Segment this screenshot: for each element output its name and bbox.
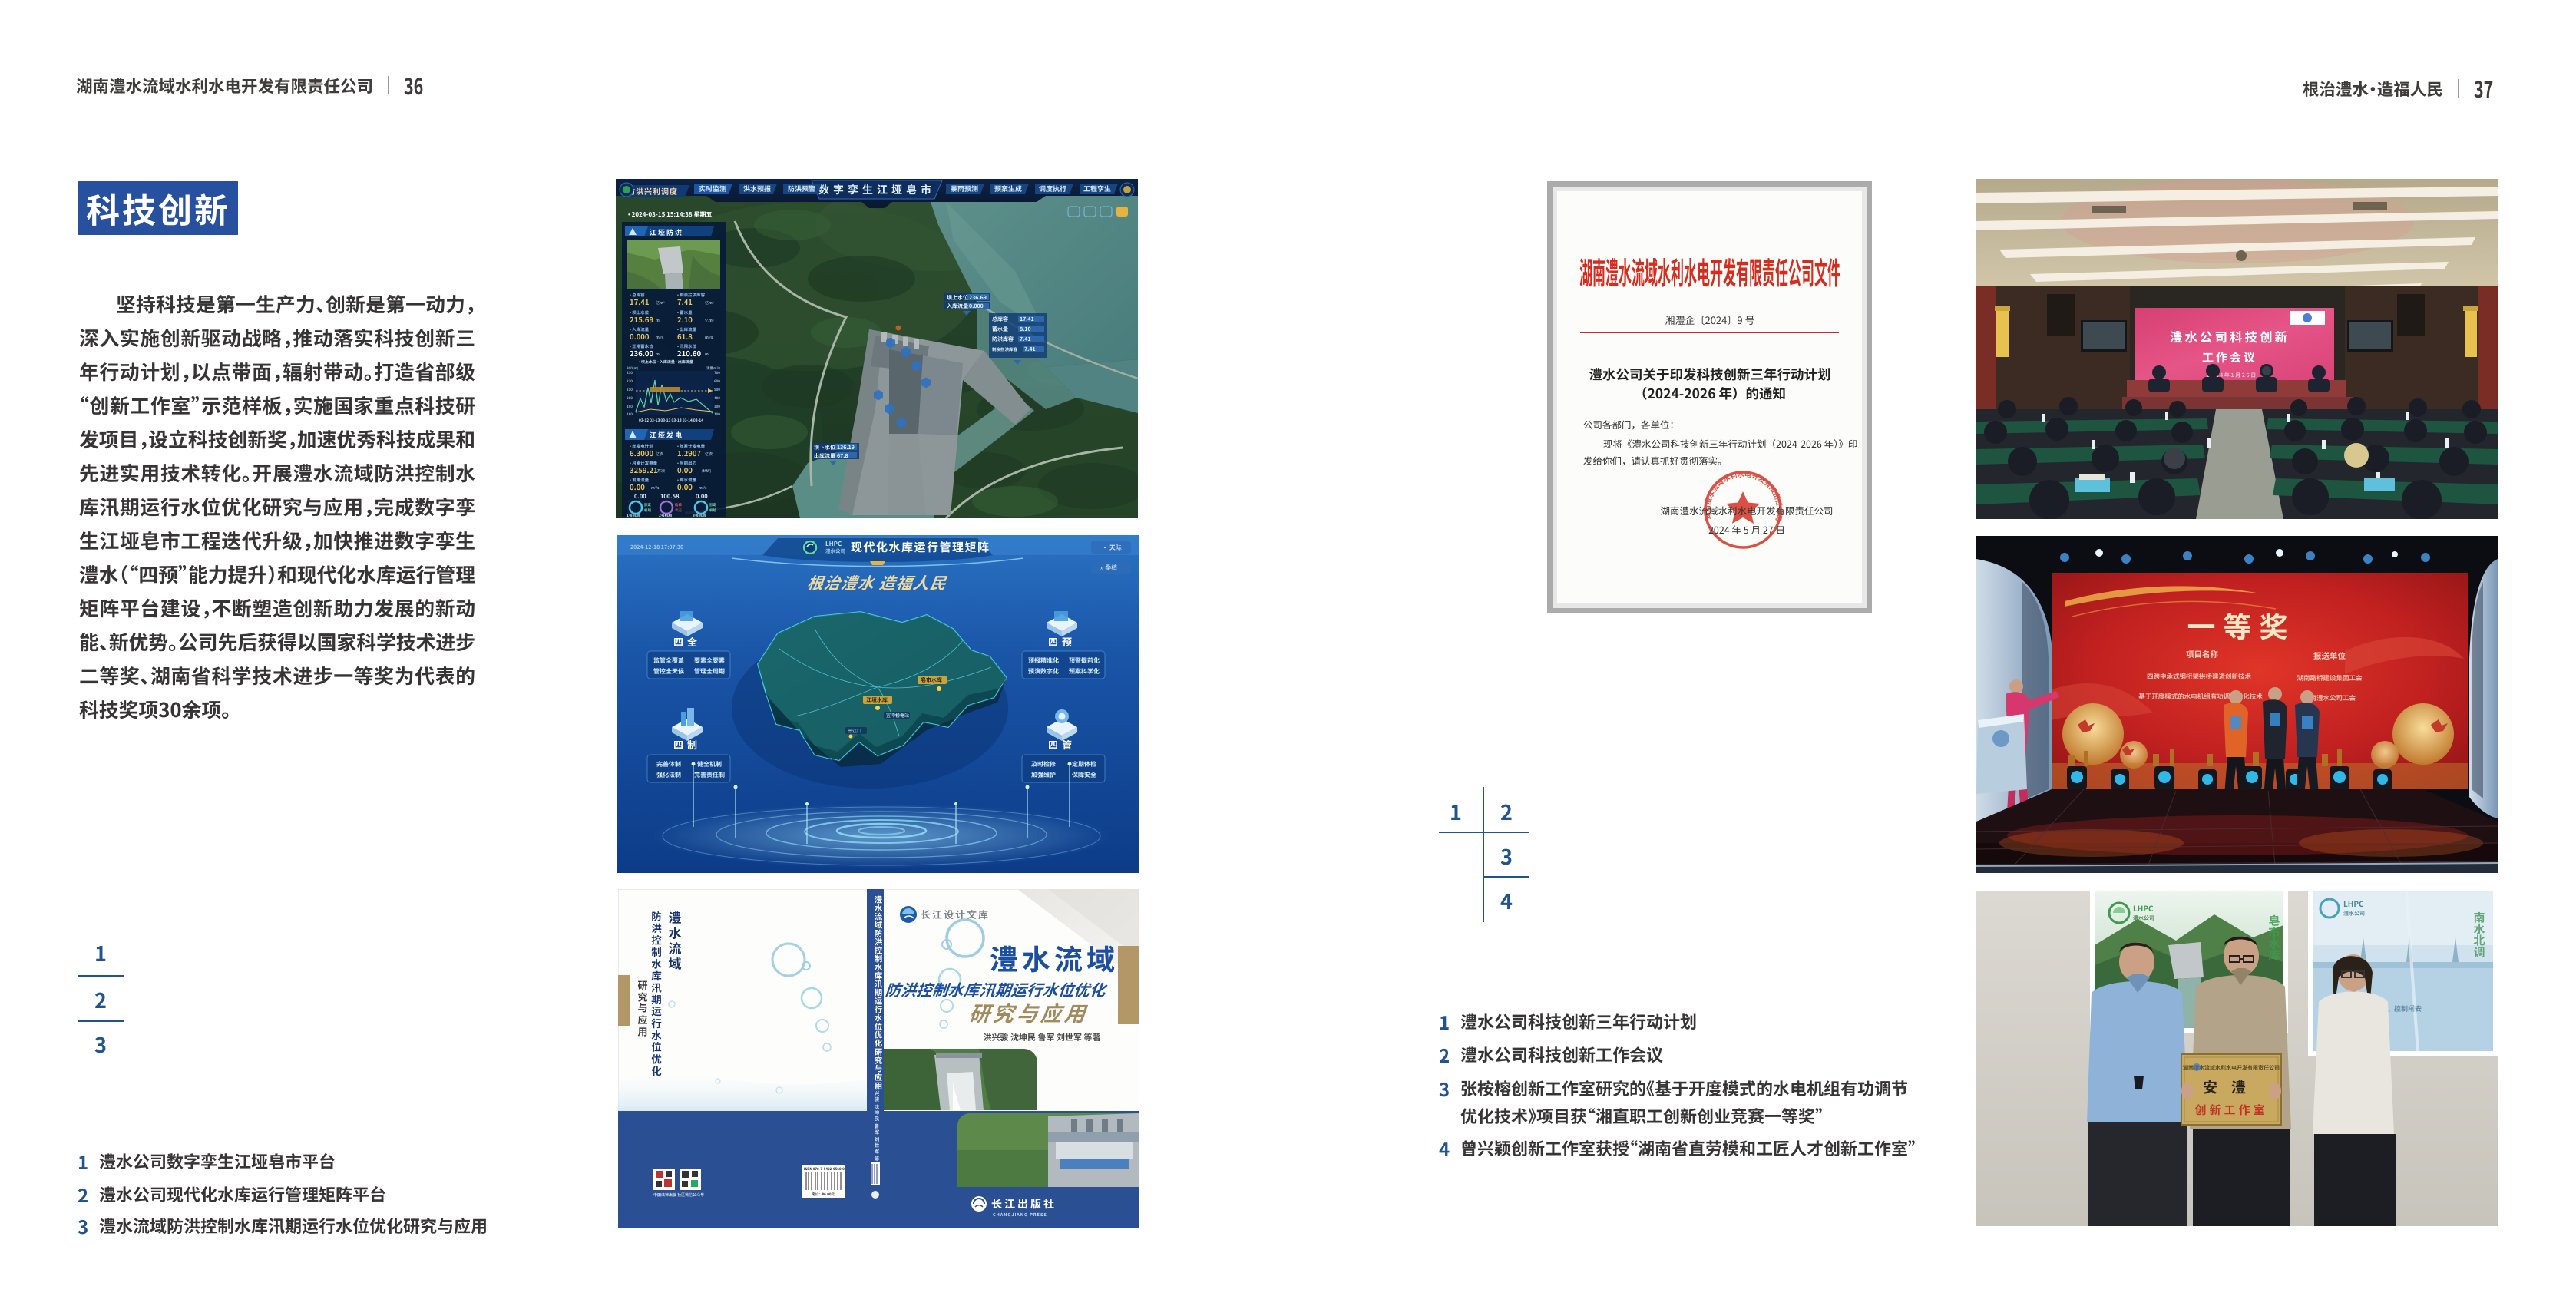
- svg-text:公司各部门，各单位：: 公司各部门，各单位：: [1583, 417, 1679, 431]
- svg-text:完善责任制: 完善责任制: [694, 771, 725, 779]
- svg-text:预报精准化: 预报精准化: [1028, 656, 1059, 665]
- svg-text:» 桑植: » 桑植: [1100, 564, 1117, 572]
- svg-text:根治澧水 造福人民: 根治澧水 造福人民: [805, 571, 949, 594]
- svg-text:预演数字化: 预演数字化: [1028, 667, 1059, 676]
- svg-text:澧水公司科技创新: 澧水公司科技创新: [2170, 327, 2290, 346]
- svg-text:m: m: [705, 352, 709, 357]
- svg-text:亿m³: 亿m³: [705, 318, 714, 323]
- svg-text:机组: 机组: [644, 508, 651, 513]
- svg-text:预警提前化: 预警提前化: [1069, 656, 1100, 665]
- svg-text:要素全要素: 要素全要素: [694, 656, 725, 665]
- svg-text:7.41: 7.41: [677, 296, 693, 307]
- svg-text:180: 180: [627, 412, 633, 417]
- svg-text:检修: 检修: [675, 503, 682, 508]
- svg-text:防洪控制水库汛期运行水位优化: 防洪控制水库汛期运行水位优化: [649, 911, 664, 1077]
- svg-text:0.00: 0.00: [677, 481, 693, 492]
- svg-text:(MW): (MW): [702, 468, 712, 474]
- svg-text:江垭防洪: 江垭防洪: [650, 227, 683, 237]
- svg-text:现将《澧水公司科技创新三年行动计划（2024-2026 年）: 现将《澧水公司科技创新三年行动计划（2024-2026 年）》印: [1603, 436, 1857, 451]
- svg-text:状态: 状态: [675, 508, 682, 513]
- svg-text:m³/s: m³/s: [656, 335, 664, 340]
- svg-text:澧水流域防洪控制水库汛期运行水位优化研究与应用: 澧水流域防洪控制水库汛期运行水位优化研究与应用: [873, 895, 885, 1089]
- svg-text:湖南澧水流域水利水电开发有限责任公司文件: 湖南澧水流域水利水电开发有限责任公司文件: [1579, 249, 1840, 293]
- svg-text:湘澧企〔2024〕9 号: 湘澧企〔2024〕9 号: [1665, 312, 1755, 327]
- svg-text:2.10: 2.10: [677, 314, 693, 325]
- svg-text:1号机组: 1号机组: [627, 513, 640, 518]
- svg-text:7.41: 7.41: [1020, 336, 1031, 343]
- svg-text:定期体检: 定期体检: [1072, 760, 1096, 769]
- svg-text:管控全天候: 管控全天候: [653, 667, 684, 676]
- svg-text:入库流量: 入库流量: [947, 303, 968, 310]
- svg-text:江垭水库: 江垭水库: [866, 696, 888, 704]
- svg-text:南水北调: 南水北调: [2472, 911, 2488, 958]
- svg-text:210: 210: [627, 388, 633, 392]
- svg-text:亿次: 亿次: [656, 451, 663, 457]
- svg-text:长江设计文库: 长江设计文库: [921, 907, 990, 921]
- svg-text:200: 200: [627, 396, 633, 401]
- svg-text:亿次: 亿次: [705, 451, 713, 457]
- svg-text:额定: 额定: [644, 502, 651, 508]
- svg-text:监管全覆盖: 监管全覆盖: [653, 656, 684, 665]
- svg-text:6.3000: 6.3000: [630, 448, 654, 458]
- svg-text:洪兴骏 沈坤民 鲁军 刘世军 等著: 洪兴骏 沈坤民 鲁军 刘世军 等著: [873, 1085, 881, 1167]
- svg-text:CHANGJIANG PRESS: CHANGJIANG PRESS: [993, 1212, 1047, 1218]
- svg-text:190: 190: [627, 405, 633, 409]
- svg-text:m: m: [656, 318, 660, 323]
- svg-text:600: 600: [714, 379, 720, 384]
- svg-text:• 2024-03-15 15:14:38 星期五: • 2024-03-15 15:14:38 星期五: [628, 210, 712, 219]
- svg-text:220: 220: [627, 379, 633, 384]
- svg-text:定价：86.00元: 定价：86.00元: [812, 1192, 835, 1197]
- svg-text:澧水公司关于印发科技创新三年行动计划: 澧水公司关于印发科技创新三年行动计划: [1589, 365, 1831, 384]
- svg-text:亿m³: 亿m³: [705, 300, 714, 306]
- svg-text:四管: 四管: [1048, 737, 1076, 752]
- svg-text:7.41: 7.41: [1024, 346, 1036, 353]
- svg-text:2024-12-18 17:07:30: 2024-12-18 17:07:30: [630, 544, 683, 551]
- svg-text:皂市水库: 皂市水库: [2267, 914, 2283, 960]
- svg-text:03-12 03-13 03-13 03-13 03-14: 03-12 03-13 03-13 03-13 03-14 03-14: [639, 418, 703, 423]
- svg-text:澧水流域: 澧水流域: [990, 937, 1119, 978]
- svg-text:17.41: 17.41: [1020, 316, 1034, 323]
- svg-text:防洪预警: 防洪预警: [788, 184, 815, 193]
- svg-text:m³/s: m³/s: [699, 485, 707, 491]
- svg-text:发给你们，请认真抓好贯彻落实。: 发给你们，请认真抓好贯彻落实。: [1583, 453, 1728, 468]
- svg-text:230: 230: [627, 371, 633, 375]
- svg-text:236.00: 236.00: [630, 348, 654, 359]
- svg-text:0.000: 0.000: [630, 331, 650, 342]
- svg-text:防洪库容: 防洪库容: [992, 336, 1014, 343]
- svg-text:健全机制: 健全机制: [697, 760, 722, 769]
- svg-text:宜冲桥电站: 宜冲桥电站: [886, 712, 909, 719]
- svg-text:防洪兴利调度: 防洪兴利调度: [627, 185, 678, 197]
- svg-text:m: m: [656, 352, 660, 357]
- svg-text:蓄水量: 蓄水量: [992, 326, 1008, 333]
- svg-text:机组: 机组: [709, 508, 716, 513]
- svg-text:236.69: 236.69: [969, 294, 987, 302]
- svg-text:61.8: 61.8: [677, 331, 693, 342]
- svg-text:m³/s: m³/s: [651, 485, 660, 491]
- svg-text:300: 300: [714, 405, 720, 409]
- svg-text:坝上水位: 坝上水位: [947, 294, 968, 302]
- svg-text:数字孪生江垭皂市: 数字孪生江垭皂市: [818, 182, 935, 197]
- svg-text:万次: 万次: [657, 468, 665, 474]
- svg-text:m³/s: m³/s: [705, 335, 713, 340]
- svg-text:500: 500: [714, 388, 720, 392]
- svg-text:报送单位: 报送单位: [2313, 650, 2346, 662]
- svg-text:210.60: 210.60: [677, 348, 702, 359]
- svg-text:LHPC: LHPC: [2343, 898, 2364, 909]
- svg-text:四跨中承式钢桁架拱桥建造创新技术: 四跨中承式钢桁架拱桥建造创新技术: [2147, 672, 2252, 681]
- svg-text:0.000: 0.000: [969, 303, 984, 310]
- svg-text:700: 700: [714, 371, 720, 375]
- svg-text:澧水公司: 澧水公司: [825, 547, 845, 554]
- svg-text:及时检修: 及时检修: [1031, 760, 1056, 769]
- svg-text:研究与应用: 研究与应用: [968, 997, 1090, 1027]
- svg-text:2024 年 5 月 27 日: 2024 年 5 月 27 日: [1708, 522, 1785, 537]
- svg-text:· 天际: · 天际: [1102, 544, 1122, 552]
- svg-text:剩余拦洪库容: 剩余拦洪库容: [992, 346, 1018, 352]
- svg-text:调度执行: 调度执行: [1039, 184, 1066, 193]
- svg-text:0.00: 0.00: [677, 465, 693, 475]
- svg-text:100: 100: [714, 412, 720, 417]
- svg-text:• 坝上水位 • 入库流量 • 出库流量: • 坝上水位 • 入库流量 • 出库流量: [639, 359, 693, 365]
- svg-text:1.2907: 1.2907: [677, 448, 702, 458]
- svg-text:湖南澧水流域水利水电开发有限责任公司: 湖南澧水流域水利水电开发有限责任公司: [1660, 503, 1833, 517]
- svg-text:出库流量: 出库流量: [814, 452, 835, 460]
- svg-text:实时监测: 实时监测: [699, 184, 726, 193]
- svg-text:洪水预报: 洪水预报: [743, 184, 771, 193]
- svg-text:四全: 四全: [673, 634, 701, 649]
- svg-text:加强维护: 加强维护: [1031, 771, 1056, 779]
- svg-text:项目名称: 项目名称: [2186, 649, 2219, 660]
- svg-text:一等奖: 一等奖: [2187, 604, 2296, 646]
- svg-text:0.00: 0.00: [696, 492, 708, 501]
- svg-text:湖南路桥建设集团工会: 湖南路桥建设集团工会: [2297, 673, 2363, 683]
- svg-text:ISBN 978-7-5492-9560-9: ISBN 978-7-5492-9560-9: [804, 1167, 845, 1172]
- svg-text:管理全周期: 管理全周期: [694, 667, 725, 676]
- svg-text:暴雨预测: 暴雨预测: [951, 184, 978, 193]
- svg-text:LHPC: LHPC: [2133, 902, 2154, 914]
- svg-text:皂市水库: 皂市水库: [921, 676, 942, 684]
- svg-text:136.19: 136.19: [837, 444, 855, 451]
- svg-text:400: 400: [714, 396, 720, 401]
- svg-text:亿m³: 亿m³: [656, 300, 665, 306]
- svg-text:215.69: 215.69: [630, 314, 654, 325]
- svg-text:2号机组: 2号机组: [659, 513, 672, 518]
- svg-text:（2024-2026 年）的通知: （2024-2026 年）的通知: [1634, 384, 1786, 403]
- svg-text:澧水公司: 澧水公司: [2343, 910, 2365, 918]
- svg-text:3号机组: 3号机组: [693, 513, 706, 518]
- svg-text:研究与应用: 研究与应用: [636, 980, 650, 1037]
- svg-text:预案科学化: 预案科学化: [1069, 667, 1100, 676]
- svg-text:工程孪生: 工程孪生: [1083, 184, 1111, 193]
- svg-text:0.00: 0.00: [634, 492, 646, 501]
- svg-text:100.58: 100.58: [660, 492, 680, 501]
- svg-text:0.00: 0.00: [630, 481, 645, 492]
- svg-text:强化法制: 强化法制: [656, 771, 681, 779]
- svg-text:保障安全: 保障安全: [1072, 771, 1096, 779]
- svg-text:四制: 四制: [673, 737, 701, 752]
- svg-text:创新工作室: 创新工作室: [2194, 1102, 2267, 1118]
- svg-text:江垭发电: 江垭发电: [650, 430, 683, 440]
- svg-text:澧水流域: 澧水流域: [666, 911, 685, 972]
- svg-text:基于开度模式的水电机组有功调节优化技术: 基于开度模式的水电机组有功调节优化技术: [2138, 692, 2263, 701]
- svg-text:中国法律出版 社区微信公众号: 中国法律出版 社区微信公众号: [653, 1192, 704, 1198]
- svg-text:67.8: 67.8: [837, 452, 848, 460]
- svg-text:三江口: 三江口: [848, 727, 861, 734]
- svg-text:额定: 额定: [709, 502, 716, 508]
- svg-text:安澧: 安澧: [2203, 1076, 2260, 1097]
- svg-text:17.41: 17.41: [630, 296, 650, 307]
- svg-text:现代化水库运行管理矩阵: 现代化水库运行管理矩阵: [851, 539, 990, 555]
- svg-text:3259.21: 3259.21: [630, 465, 658, 475]
- svg-text:坝下水位: 坝下水位: [814, 444, 835, 451]
- svg-text:总库容: 总库容: [992, 316, 1008, 323]
- svg-text:澧水公司: 澧水公司: [2133, 914, 2154, 922]
- svg-text:四预: 四预: [1048, 634, 1076, 649]
- svg-text:完善体制: 完善体制: [656, 760, 681, 769]
- svg-text:8.10: 8.10: [1020, 326, 1031, 333]
- svg-text:长江出版社: 长江出版社: [991, 1196, 1057, 1212]
- svg-text:预案生成: 预案生成: [994, 184, 1022, 193]
- svg-text:洪兴骏 沈坤民 鲁军 刘世军 等著: 洪兴骏 沈坤民 鲁军 刘世军 等著: [984, 1031, 1101, 1043]
- svg-text:工作会议: 工作会议: [2202, 349, 2257, 365]
